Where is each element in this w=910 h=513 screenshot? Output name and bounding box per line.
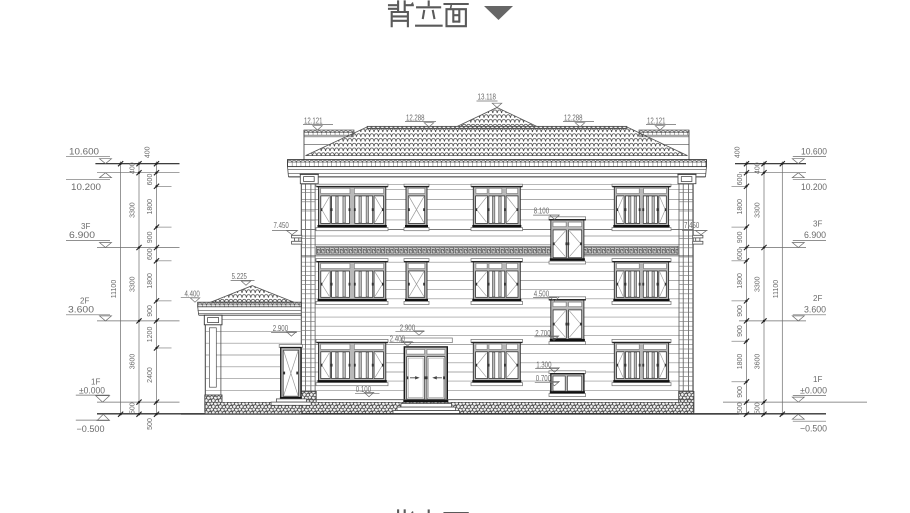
svg-text:4.500: 4.500 [534,289,550,298]
svg-text:3300: 3300 [755,276,762,292]
svg-text:1800: 1800 [147,273,154,289]
svg-text:2400: 2400 [147,367,154,383]
svg-text:7.450: 7.450 [274,221,290,230]
svg-text:6.900: 6.900 [804,230,826,240]
svg-text:600: 600 [737,248,744,260]
svg-text:900: 900 [737,386,744,398]
svg-text:600: 600 [147,174,154,186]
svg-text:13.118: 13.118 [478,93,497,102]
svg-text:12.288: 12.288 [564,113,583,122]
svg-text:400: 400 [145,146,152,158]
svg-text:−0.500: −0.500 [77,424,105,434]
svg-text:400: 400 [755,162,762,174]
svg-text:400: 400 [735,146,742,158]
svg-text:900: 900 [737,325,744,337]
svg-text:1800: 1800 [147,199,154,215]
svg-text:10.200: 10.200 [801,182,827,192]
svg-text:3300: 3300 [755,202,762,218]
svg-text:10.600: 10.600 [69,147,99,157]
svg-text:600: 600 [147,248,154,260]
svg-text:−0.500: −0.500 [800,424,827,434]
svg-text:10.200: 10.200 [71,182,101,192]
svg-text:900: 900 [147,231,154,243]
svg-text:600: 600 [737,174,744,186]
svg-text:1800: 1800 [737,199,744,215]
svg-text:11100: 11100 [111,280,118,299]
svg-text:3600: 3600 [130,354,137,370]
svg-text:3600: 3600 [755,354,762,370]
svg-text:2F: 2F [813,294,822,303]
svg-text:11100: 11100 [773,280,780,299]
svg-text:8.100: 8.100 [534,206,550,215]
svg-text:500: 500 [737,402,744,414]
svg-text:±0.000: ±0.000 [79,386,105,396]
svg-text:500: 500 [130,402,137,414]
svg-text:400: 400 [130,162,137,174]
svg-text:12.121: 12.121 [647,116,666,125]
svg-text:500: 500 [755,402,762,414]
svg-text:1.300: 1.300 [536,361,552,370]
svg-text:7.450: 7.450 [684,221,700,230]
svg-text:3F: 3F [813,220,822,229]
svg-text:500: 500 [147,418,154,430]
svg-text:1F: 1F [813,375,822,384]
svg-text:6.900: 6.900 [69,230,95,240]
svg-text:3300: 3300 [130,276,137,292]
svg-text:3.600: 3.600 [804,305,826,315]
svg-text:900: 900 [147,305,154,317]
svg-text:900: 900 [737,231,744,243]
svg-text:1800: 1800 [737,273,744,289]
svg-text:12.288: 12.288 [406,113,425,122]
svg-text:1800: 1800 [737,354,744,370]
svg-text:±0.000: ±0.000 [800,385,827,395]
svg-text:3300: 3300 [130,202,137,218]
svg-text:12.121: 12.121 [304,116,323,125]
svg-text:0.700: 0.700 [536,374,552,383]
svg-text:4.400: 4.400 [185,289,201,298]
svg-text:3.600: 3.600 [68,305,94,315]
svg-text:900: 900 [737,305,744,317]
svg-text:2.900: 2.900 [273,324,289,333]
svg-text:5.225: 5.225 [232,272,248,281]
svg-text:2.900: 2.900 [400,324,416,333]
svg-text:1200: 1200 [147,327,154,343]
svg-text:10.600: 10.600 [801,147,827,157]
